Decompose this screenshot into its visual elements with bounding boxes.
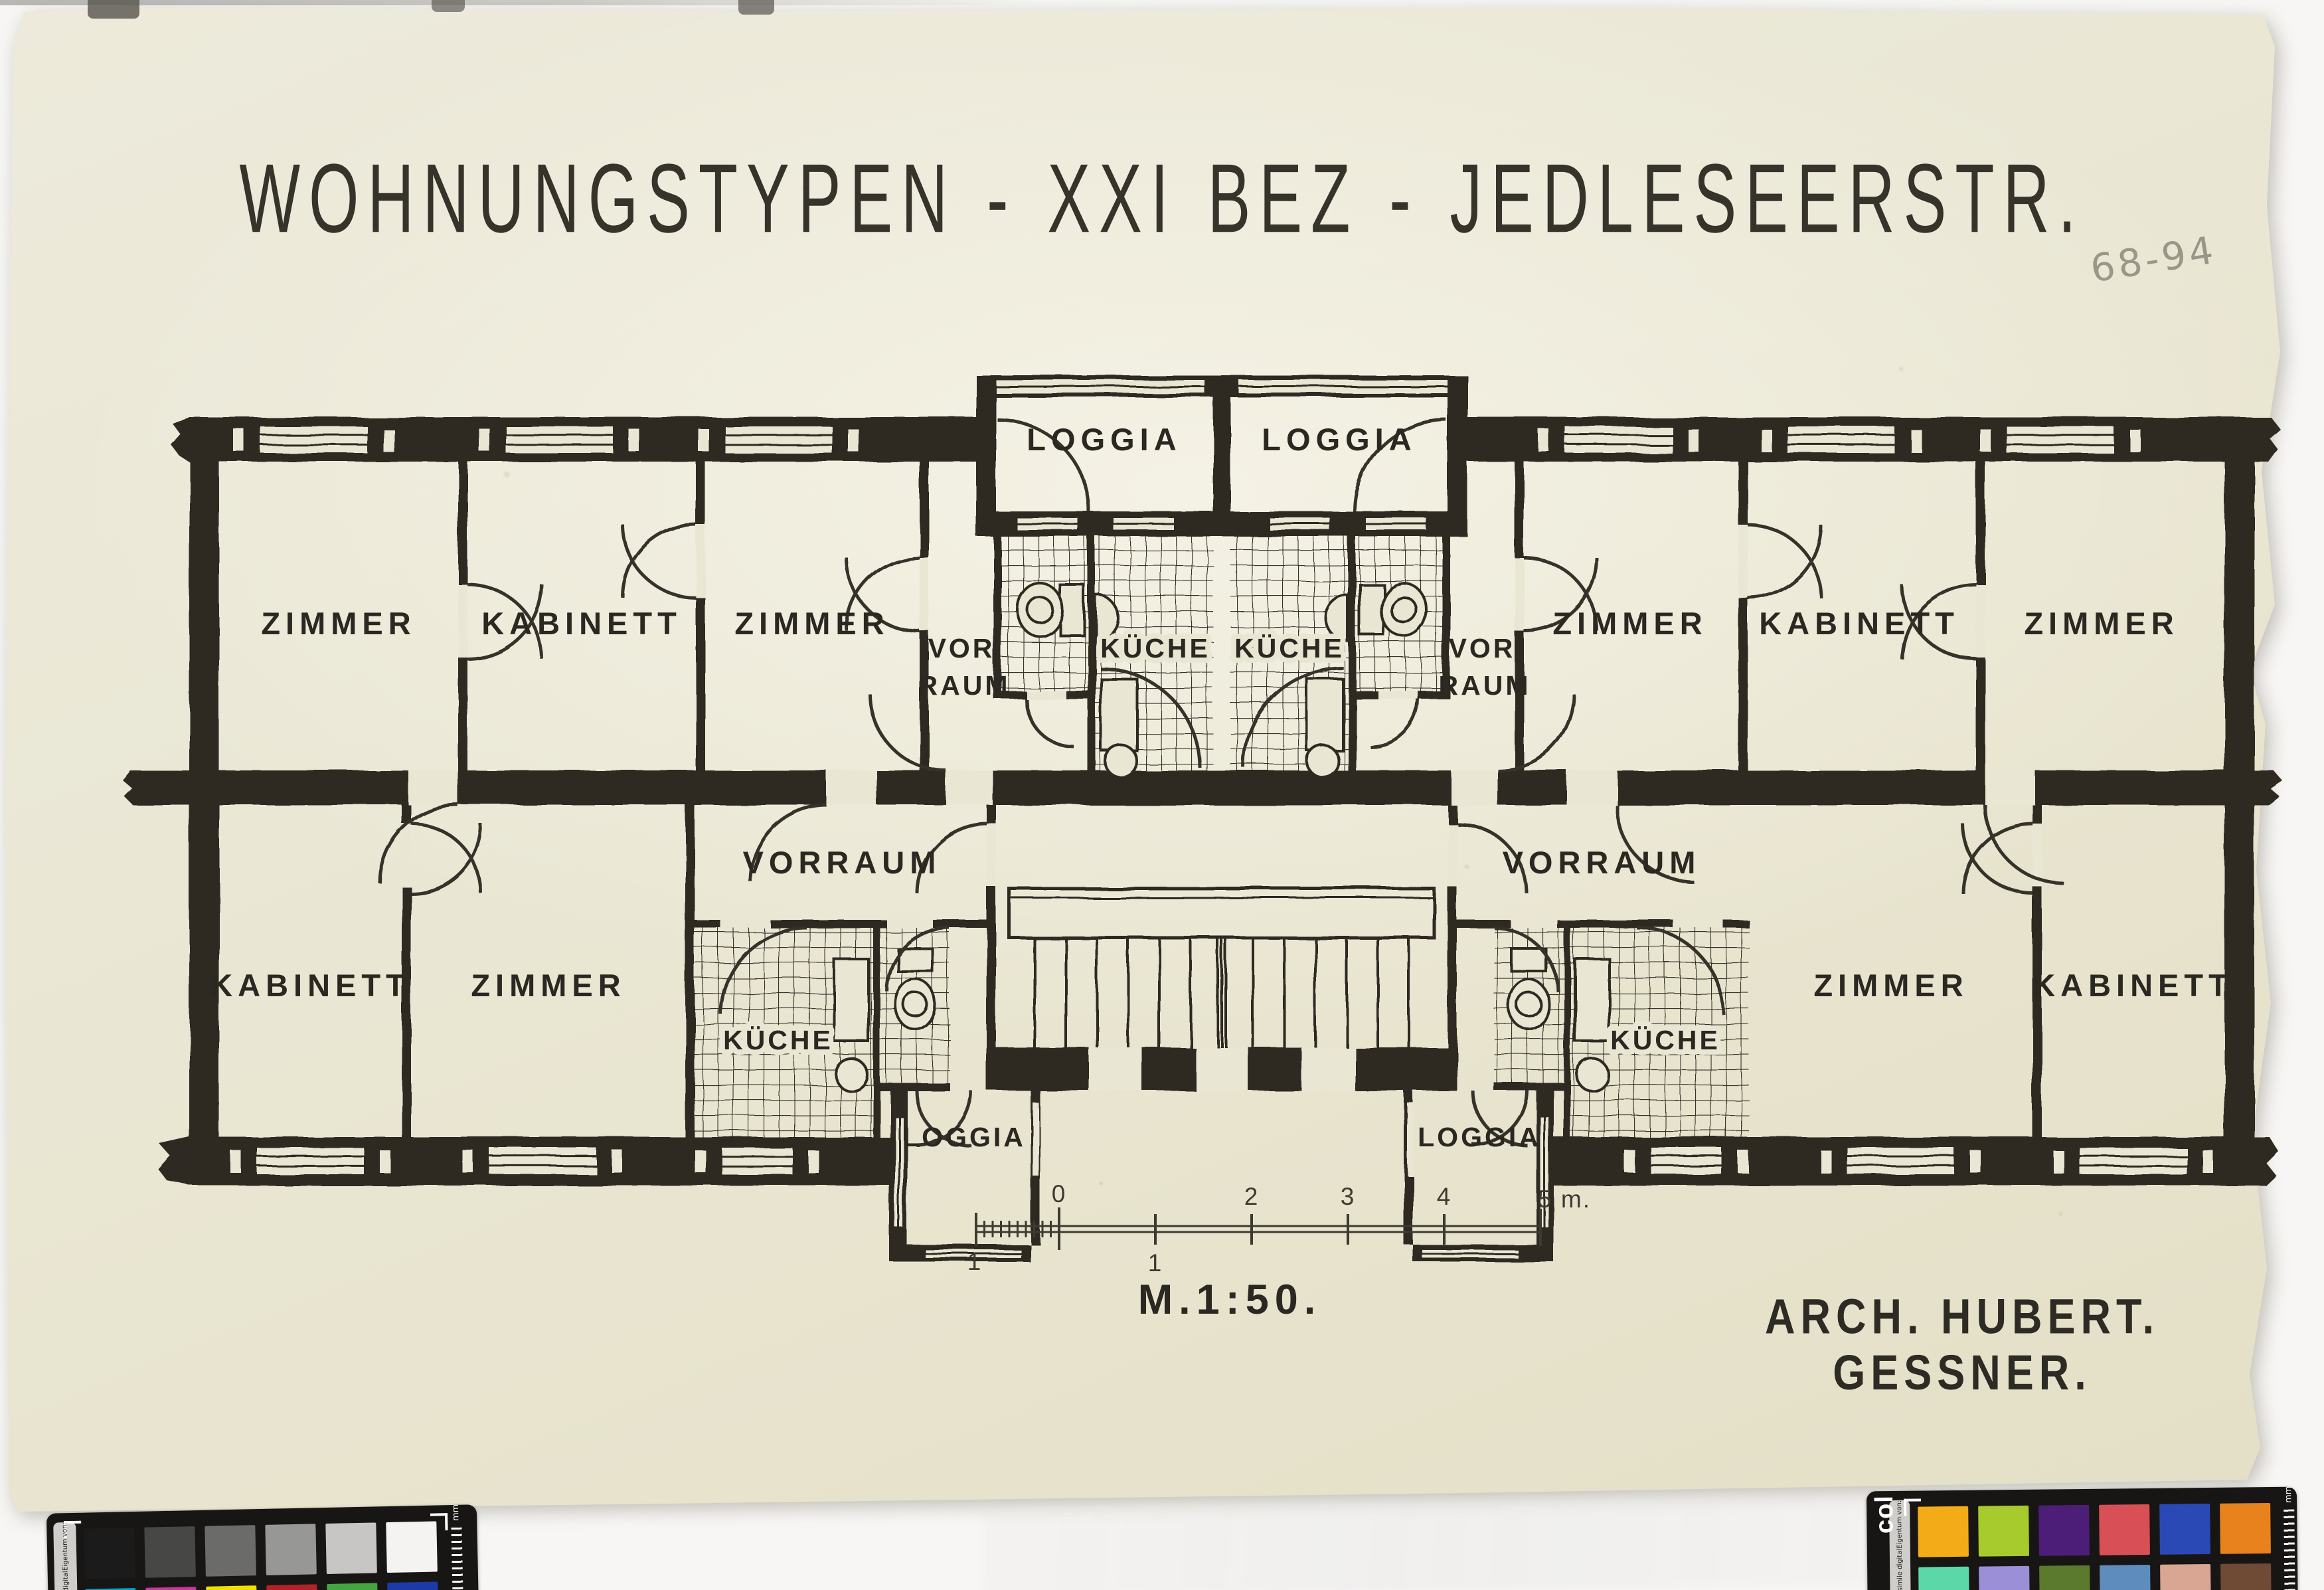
color-row-2 [1918, 1563, 2272, 1590]
architect-signature: ARCH. HUBERT. GESSNER. [1680, 1288, 2244, 1401]
calibration-card-left: Eigentum von: faksimile digital www.faks… [46, 1504, 479, 1590]
room-label-loggia: LOGGIA [1418, 1122, 1541, 1152]
scale-tick-label: 1 [967, 1248, 983, 1275]
brand-text: faksimile digital [62, 1571, 70, 1590]
room-label-vorraum: VOR [1449, 633, 1516, 663]
mm-ruler: mm [2277, 1487, 2297, 1590]
room-label-loggia: LOGGIA [1262, 422, 1416, 457]
registration-corner-icon [1904, 1499, 1921, 1516]
color-row [85, 1581, 438, 1590]
scale-bar-ticks [976, 1207, 1540, 1250]
scale-tick-label: 5 m. [1538, 1186, 1591, 1213]
calibration-swatch [206, 1585, 258, 1590]
calibration-swatch [325, 1522, 377, 1574]
calibration-swatch [386, 1522, 438, 1573]
calibration-swatch [205, 1525, 256, 1577]
brand-text: faksimile digital [1896, 1549, 1904, 1590]
walls [189, 375, 2254, 1262]
calibration-swatch [1979, 1506, 2030, 1557]
calibration-swatch [2039, 1565, 2090, 1590]
room-label-zimmer: ZIMMER [1813, 968, 1968, 1003]
room-label-kueche: KÜCHE [1234, 633, 1345, 663]
room-label-kueche: KÜCHE [723, 1025, 833, 1055]
room-label-loggia: LOGGIA [902, 1122, 1026, 1152]
calibration-swatch [2220, 1563, 2272, 1590]
room-label-zimmer: ZIMMER [1552, 606, 1707, 641]
room-label-kabinett: KABINETT [2033, 968, 2233, 1003]
card-corner-text: col [1870, 1495, 1900, 1534]
calibration-swatch [387, 1581, 439, 1590]
calibration-swatch [2159, 1504, 2210, 1555]
scanned-floor-plan-page: WOHNUNGSTYPEN - XXI BEZ - JEDLESEERSTR. … [0, 0, 2324, 1590]
calibration-swatch [265, 1524, 317, 1575]
ruler-unit-label: mm [2283, 1486, 2293, 1503]
mm-ruler: mm [443, 1505, 465, 1590]
room-label-loggia: LOGGIA [1027, 422, 1181, 457]
scale-tick-label: 2 [1244, 1183, 1260, 1210]
color-row-1 [1918, 1503, 2272, 1557]
ruler-ticks [2283, 1510, 2295, 1590]
calibration-swatch [1979, 1566, 2030, 1590]
scale-tick-label: 3 [1341, 1183, 1356, 1210]
calibration-swatch [144, 1526, 196, 1578]
owner-text: Eigentum von: [61, 1522, 70, 1571]
room-label-zimmer: ZIMMER [734, 606, 889, 641]
room-label-vorraum: VORRAUM [1503, 845, 1701, 880]
calibration-swatch [2099, 1504, 2150, 1555]
room-label-kabinett: KABINETT [1759, 606, 1959, 641]
owner-text: Eigentum von: [1896, 1500, 1904, 1549]
grayscale-row [84, 1522, 437, 1579]
room-label-zimmer: ZIMMER [471, 968, 625, 1003]
calibration-swatch [1918, 1567, 1969, 1590]
room-label-vorraum: VORRAUM [743, 845, 942, 880]
calibration-swatch [145, 1587, 197, 1590]
calibration-swatch [327, 1583, 378, 1590]
scale-tick-label: 1 [1148, 1249, 1163, 1277]
calibration-swatch [1918, 1506, 1969, 1557]
calibration-swatch [2220, 1503, 2271, 1554]
room-label-vorraum: VOR [928, 633, 995, 663]
ruler-ticks [451, 1528, 464, 1590]
scale-bar [976, 1207, 1540, 1250]
calibration-swatch [84, 1528, 135, 1579]
room-label-kueche: KÜCHE [1100, 633, 1210, 663]
room-label-kabinett: KABINETT [210, 968, 410, 1003]
calibration-swatch [2100, 1565, 2151, 1590]
room-label-zimmer: ZIMMER [261, 606, 416, 641]
room-label-kabinett: KABINETT [481, 606, 682, 641]
ruler-unit-label: mm [451, 1504, 461, 1522]
calibration-swatch [2038, 1505, 2090, 1556]
plan-walls-and-structure [122, 375, 2283, 1262]
room-label-vorraum: RAUM [1439, 670, 1531, 701]
scale-tick-label: 0 [1052, 1180, 1067, 1207]
room-label-zimmer: ZIMMER [2024, 606, 2179, 641]
room-label-vorraum: RAUM [918, 670, 1011, 701]
room-label-kueche: KÜCHE [1610, 1025, 1720, 1055]
scale-tick-label: 4 [1437, 1183, 1452, 1210]
calibration-swatch [2160, 1564, 2211, 1590]
calibration-swatch [266, 1584, 318, 1590]
staircase [1009, 889, 1434, 1047]
calibration-card-right: col Eigentum von: faksimile digital www.… [1867, 1487, 2298, 1590]
scale-text: M.1:50. [1138, 1277, 1322, 1323]
